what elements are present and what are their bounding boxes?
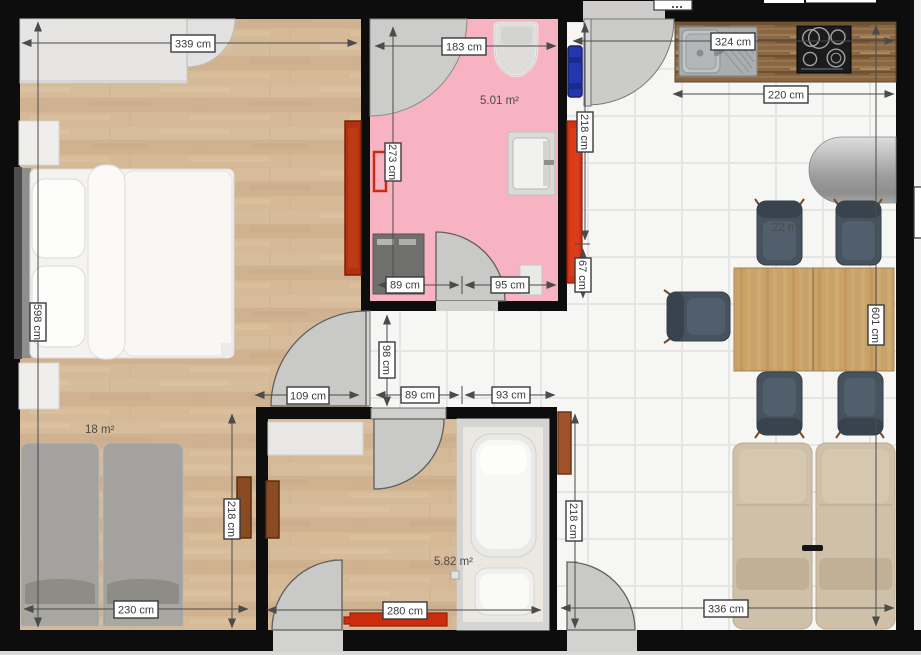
svg-text:218 cm: 218 cm xyxy=(225,501,237,537)
svg-text:601 cm: 601 cm xyxy=(869,307,881,343)
svg-text:5.82 m²: 5.82 m² xyxy=(434,556,473,568)
svg-text:230 cm: 230 cm xyxy=(118,605,154,617)
svg-text:339 cm: 339 cm xyxy=(175,39,211,51)
svg-text:93 cm: 93 cm xyxy=(496,390,526,402)
svg-text:98 cm: 98 cm xyxy=(380,345,392,375)
svg-text:273 cm: 273 cm xyxy=(386,144,398,180)
svg-text:218 cm: 218 cm xyxy=(578,114,590,150)
svg-text:280 cm: 280 cm xyxy=(387,606,423,618)
svg-text:218 cm: 218 cm xyxy=(567,503,579,539)
svg-text:95 cm: 95 cm xyxy=(495,280,525,292)
svg-text:5.01 m²: 5.01 m² xyxy=(480,95,519,107)
svg-text:324 cm: 324 cm xyxy=(715,37,751,49)
svg-text:183 cm: 183 cm xyxy=(446,42,482,54)
svg-text:598 cm: 598 cm xyxy=(31,304,43,340)
svg-text:18 m²: 18 m² xyxy=(85,424,115,436)
svg-text:89 cm: 89 cm xyxy=(405,390,435,402)
svg-text:109 cm: 109 cm xyxy=(290,391,326,403)
svg-text:336 cm: 336 cm xyxy=(708,604,744,616)
svg-text:67 cm: 67 cm xyxy=(576,260,588,290)
svg-text:22 m²: 22 m² xyxy=(772,222,802,234)
svg-text:220 cm: 220 cm xyxy=(768,90,804,102)
svg-text:89 cm: 89 cm xyxy=(390,280,420,292)
